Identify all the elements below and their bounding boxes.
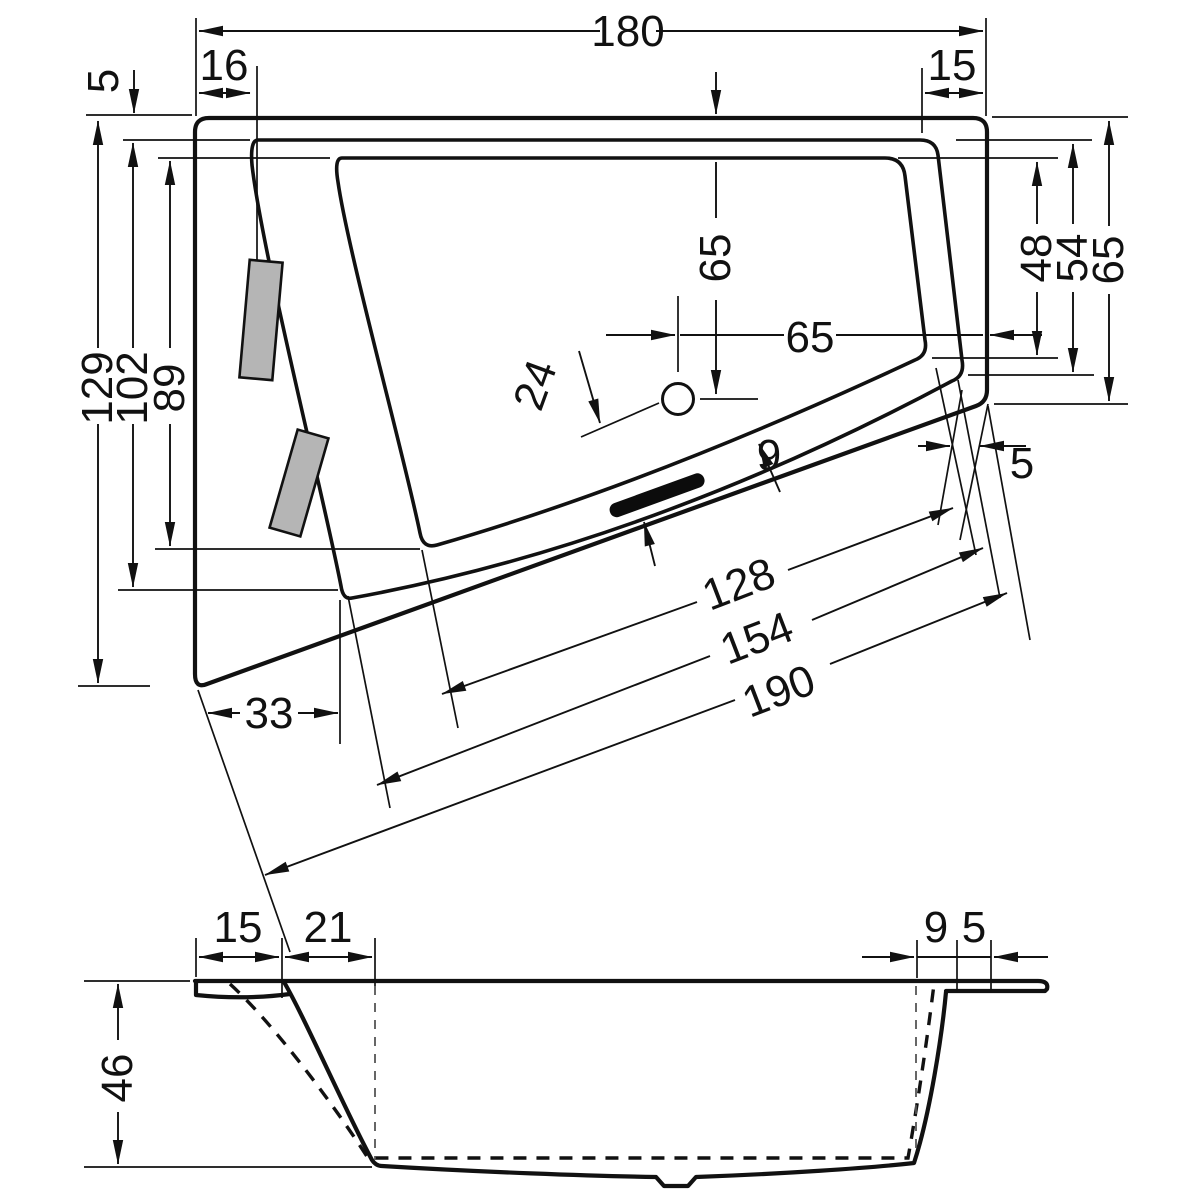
dim-plan-inset-left: 16 (200, 41, 249, 90)
ext-line (348, 596, 390, 808)
section-rim-left (196, 982, 290, 997)
section-view: 46 15 21 9 5 (84, 903, 1048, 1186)
section-rim-top (195, 981, 1047, 991)
dim-arrow (265, 700, 735, 875)
dim-plan-drain-edge-offset: 24 (504, 354, 567, 417)
dim-plan-rim-top: 5 (79, 69, 128, 93)
dim-plan-inset-right: 15 (928, 41, 977, 90)
ext-line (938, 390, 962, 525)
dim-arrow (442, 602, 697, 694)
plan-view: 180 16 15 5 129 102 89 65 65 24 48 54 65… (73, 7, 1133, 952)
dim-arrow (579, 351, 600, 423)
ext-line (958, 380, 1000, 598)
plan-rim-outline (252, 140, 963, 598)
dim-plan-drain-top-offset: 65 (691, 234, 740, 283)
dim-arrow (644, 522, 655, 566)
ext-line (960, 404, 988, 540)
dim-arrow (377, 656, 710, 785)
section-wall-floor (284, 982, 946, 1186)
technical-drawing-page: 180 16 15 5 129 102 89 65 65 24 48 54 65… (0, 0, 1198, 1198)
section-inner-dashed (230, 984, 934, 1158)
dim-plan-rim-bottom-right-width: 5 (1010, 439, 1034, 488)
ext-line (936, 368, 976, 555)
ext-line (581, 403, 659, 437)
plan-outer-outline (195, 118, 987, 685)
headrest-top (239, 260, 282, 380)
dim-plan-rim-bottom-width: 9 (757, 431, 781, 480)
dim-plan-height-left-basin: 89 (145, 364, 194, 413)
dim-section-slope-left: 21 (304, 903, 353, 952)
drain (663, 384, 694, 415)
dim-section-slope-right: 9 (924, 903, 948, 952)
dim-arrow (830, 593, 1007, 664)
dim-arrow (788, 508, 953, 570)
grip-bar (608, 471, 707, 519)
dim-arrow (812, 548, 983, 620)
bathtub-technical-drawing: 180 16 15 5 129 102 89 65 65 24 48 54 65… (0, 0, 1198, 1198)
dim-section-rim-left: 15 (214, 903, 263, 952)
dim-plan-offset-bottom-left: 33 (245, 689, 294, 738)
plan-basin-outline (337, 158, 926, 546)
dim-plan-height-right-total: 65 (1084, 236, 1133, 285)
dim-plan-drain-right-offset: 65 (786, 313, 835, 362)
dim-section-depth: 46 (93, 1054, 142, 1103)
dim-section-rim-right: 5 (962, 903, 986, 952)
dim-plan-width-total: 180 (591, 7, 664, 56)
